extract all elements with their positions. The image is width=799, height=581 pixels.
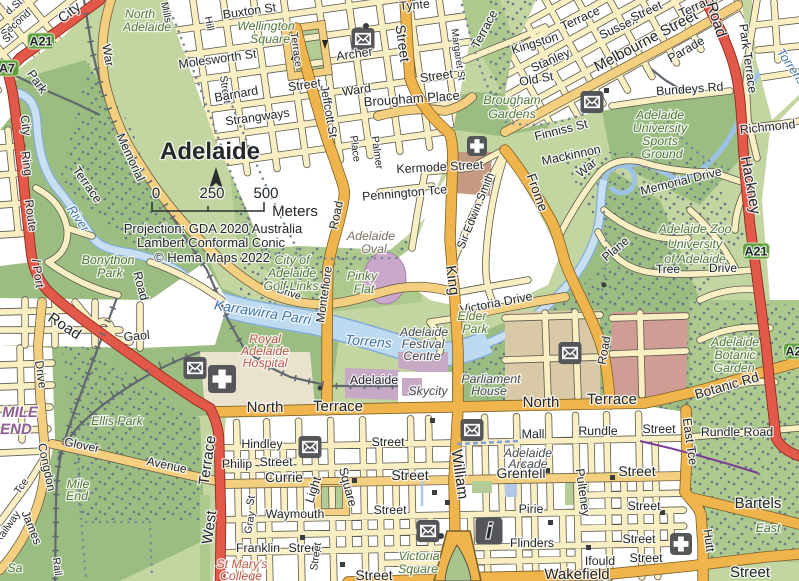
svg-text:Brougham: Brougham: [483, 93, 540, 107]
svg-text:A21: A21: [745, 245, 768, 259]
svg-text:Currie: Currie: [265, 469, 303, 485]
svg-text:A21: A21: [30, 35, 53, 49]
svg-text:Waymouth: Waymouth: [266, 507, 325, 521]
svg-text:Street: Street: [642, 422, 676, 436]
svg-text:Street: Street: [730, 564, 771, 581]
svg-text:Terrace: Terrace: [587, 391, 637, 408]
svg-text:House: House: [471, 384, 507, 398]
svg-text:Oval: Oval: [361, 242, 388, 256]
svg-text:Street: Street: [627, 499, 661, 513]
svg-text:Street: Street: [391, 467, 428, 483]
svg-text:Mall: Mall: [522, 427, 545, 441]
svg-text:Street: Street: [355, 567, 392, 581]
svg-text:Square: Square: [250, 32, 290, 46]
svg-text:East: East: [756, 521, 781, 535]
svg-text:Flinders: Flinders: [510, 536, 554, 550]
svg-text:Flat: Flat: [354, 282, 375, 296]
svg-text:500: 500: [253, 185, 278, 202]
svg-text:University: University: [668, 237, 723, 251]
svg-text:Square: Square: [398, 562, 438, 576]
svg-text:A7: A7: [0, 62, 15, 76]
svg-text:Pinky: Pinky: [347, 269, 378, 283]
svg-text:Rail: Rail: [50, 557, 64, 577]
svg-text:Gaol: Gaol: [123, 328, 150, 344]
svg-text:Wellington: Wellington: [237, 19, 295, 33]
svg-text:North: North: [523, 394, 560, 411]
svg-text:Bartels: Bartels: [735, 495, 782, 512]
svg-text:Arcade: Arcade: [507, 457, 547, 471]
svg-text:College: College: [220, 569, 262, 581]
svg-text:Botanic: Botanic: [714, 348, 756, 362]
svg-text:Pirie: Pirie: [519, 502, 544, 516]
svg-text:Ground: Ground: [641, 147, 683, 161]
svg-text:Adelaide: Adelaide: [160, 138, 260, 165]
svg-text:Sports: Sports: [642, 134, 678, 148]
svg-text:Wakefield: Wakefield: [544, 566, 609, 581]
svg-text:Tree: Tree: [656, 262, 681, 276]
svg-text:Street: Street: [622, 532, 656, 546]
svg-text:Adelaide: Adelaide: [710, 335, 759, 349]
svg-text:North: North: [247, 399, 284, 416]
svg-text:Projection: GDA 2020 Australia: Projection: GDA 2020 Australia: [124, 221, 303, 236]
svg-text:Sa: Sa: [7, 561, 22, 575]
svg-text:City of: City of: [274, 253, 311, 267]
svg-text:Philip: Philip: [222, 457, 252, 471]
svg-text:North: North: [125, 7, 155, 21]
svg-text:Street: Street: [373, 503, 407, 517]
svg-text:Franklin: Franklin: [236, 541, 280, 555]
svg-text:Adelaide: Adelaide: [350, 373, 398, 387]
svg-text:Adelaide: Adelaide: [267, 266, 316, 280]
svg-text:Rundle: Rundle: [578, 424, 617, 438]
svg-text:Ellis Park: Ellis Park: [91, 414, 143, 428]
svg-text:Elder: Elder: [458, 309, 488, 323]
svg-text:Park: Park: [462, 322, 488, 336]
svg-text:Hospital: Hospital: [243, 356, 289, 370]
svg-text:Street: Street: [371, 435, 405, 449]
svg-text:Lambert Conformal Conic: Lambert Conformal Conic: [137, 235, 286, 250]
svg-text:MILE: MILE: [2, 404, 39, 421]
svg-text:Meters: Meters: [272, 203, 318, 220]
svg-text:Golf Links: Golf Links: [263, 279, 318, 293]
svg-text:Victoria: Victoria: [398, 549, 439, 563]
svg-text:Street: Street: [259, 455, 293, 469]
svg-text:0: 0: [152, 185, 160, 202]
svg-text:Adelaide Zoo: Adelaide Zoo: [657, 222, 731, 236]
svg-text:250: 250: [199, 185, 224, 202]
svg-text:Street: Street: [629, 551, 663, 565]
svg-text:Rundle Road: Rundle Road: [701, 425, 773, 439]
svg-text:University: University: [633, 121, 688, 135]
svg-text:i: i: [486, 519, 493, 544]
svg-text:Park: Park: [97, 266, 123, 280]
svg-text:A21: A21: [786, 345, 799, 359]
svg-text:End: End: [66, 489, 89, 503]
svg-text:Skycity: Skycity: [408, 384, 448, 398]
svg-text:Garden: Garden: [713, 361, 754, 375]
svg-text:Adelaide: Adelaide: [635, 108, 684, 122]
svg-text:Bonython: Bonython: [82, 253, 135, 267]
svg-text:Drive: Drive: [709, 261, 737, 275]
svg-text:© Hema Maps 2022: © Hema Maps 2022: [154, 250, 270, 265]
svg-text:Centre: Centre: [403, 349, 440, 363]
svg-text:Hill: Hill: [202, 15, 216, 31]
svg-text:END: END: [0, 421, 32, 438]
svg-text:Hindley: Hindley: [241, 437, 283, 451]
svg-text:Gardens: Gardens: [488, 107, 536, 121]
svg-text:Terrace: Terrace: [313, 398, 363, 415]
svg-text:City: City: [18, 114, 35, 136]
svg-text:Street: Street: [618, 463, 655, 479]
svg-text:Adelaide: Adelaide: [346, 229, 395, 243]
